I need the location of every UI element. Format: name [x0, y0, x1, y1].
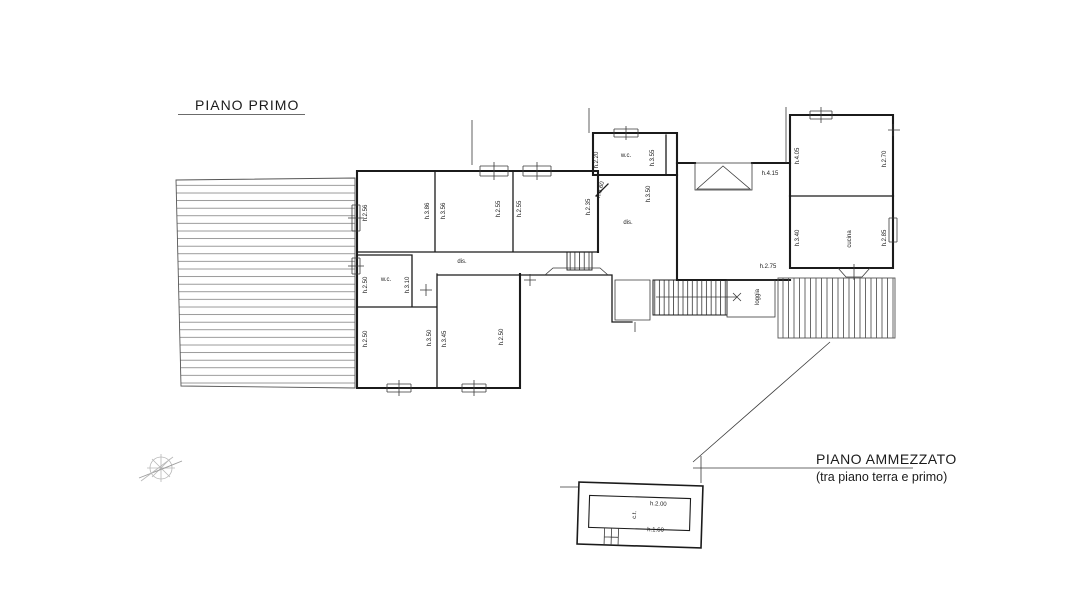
room-label: h.3.86: [425, 202, 431, 219]
room-label: dis.: [623, 220, 633, 226]
mezzanine-leader-line: [693, 342, 830, 462]
room-label: h.2.56: [363, 204, 369, 221]
room-label: h.2.70: [882, 150, 888, 167]
room-label: h.3.10: [405, 276, 411, 293]
mezzanine-subtitle: (tra piano terra e primo): [816, 470, 947, 484]
mezzanine-stair-steps: [604, 528, 619, 545]
north-arrow-icon: [139, 454, 182, 482]
room-label: h.3.56: [441, 202, 447, 219]
first-floor-title: PIANO PRIMO: [195, 97, 299, 113]
room-label: h.2.55: [496, 200, 502, 217]
room-label: loggia: [755, 288, 761, 305]
room-label: h.2.50: [363, 276, 369, 293]
terrace-roof-hatch: [176, 178, 355, 388]
room-label: h.2.75: [760, 264, 777, 270]
room-label: h.2.35: [586, 198, 592, 215]
room-label: h.2.50: [363, 330, 369, 347]
skylight: [695, 163, 752, 190]
room-label: h.2.20: [594, 151, 600, 168]
room-label: h.3.45: [442, 330, 448, 347]
mezzanine-plan: h.2.00c.t.h.1.60: [577, 482, 703, 548]
room-label: h.3.55: [650, 149, 656, 166]
room-label: cucina: [847, 230, 853, 248]
room-label: h.2.85: [882, 229, 888, 246]
mezzanine-title-block: PIANO AMMEZZATO (tra piano terra e primo…: [693, 342, 957, 484]
room-label: h.3.40: [795, 229, 801, 246]
floor-plan-canvas: PIANO PRIMO: [0, 0, 1080, 607]
room-label: h.1.60: [647, 527, 665, 534]
room-label: h.4.05: [795, 147, 801, 164]
room-label: w.c.: [380, 277, 392, 283]
room-label: w.c.: [620, 153, 632, 159]
room-label: h.4.15: [762, 171, 779, 177]
room-label: h.2.50: [499, 328, 505, 345]
small-staircase: [567, 252, 592, 270]
loggia-area: [727, 280, 775, 317]
balcony-hatch: [778, 278, 895, 338]
main-staircase: [653, 280, 741, 315]
first-floor-title-block: PIANO PRIMO: [178, 97, 305, 115]
room-label: h.3.50: [646, 185, 652, 202]
room-label: h.3.50: [427, 329, 433, 346]
mezzanine-title: PIANO AMMEZZATO: [816, 451, 957, 467]
room-label: c.t.: [632, 510, 638, 519]
room-label: h.2.55: [517, 200, 523, 217]
room-label: dis.: [457, 259, 467, 265]
room-label: h.2.00: [650, 501, 668, 508]
